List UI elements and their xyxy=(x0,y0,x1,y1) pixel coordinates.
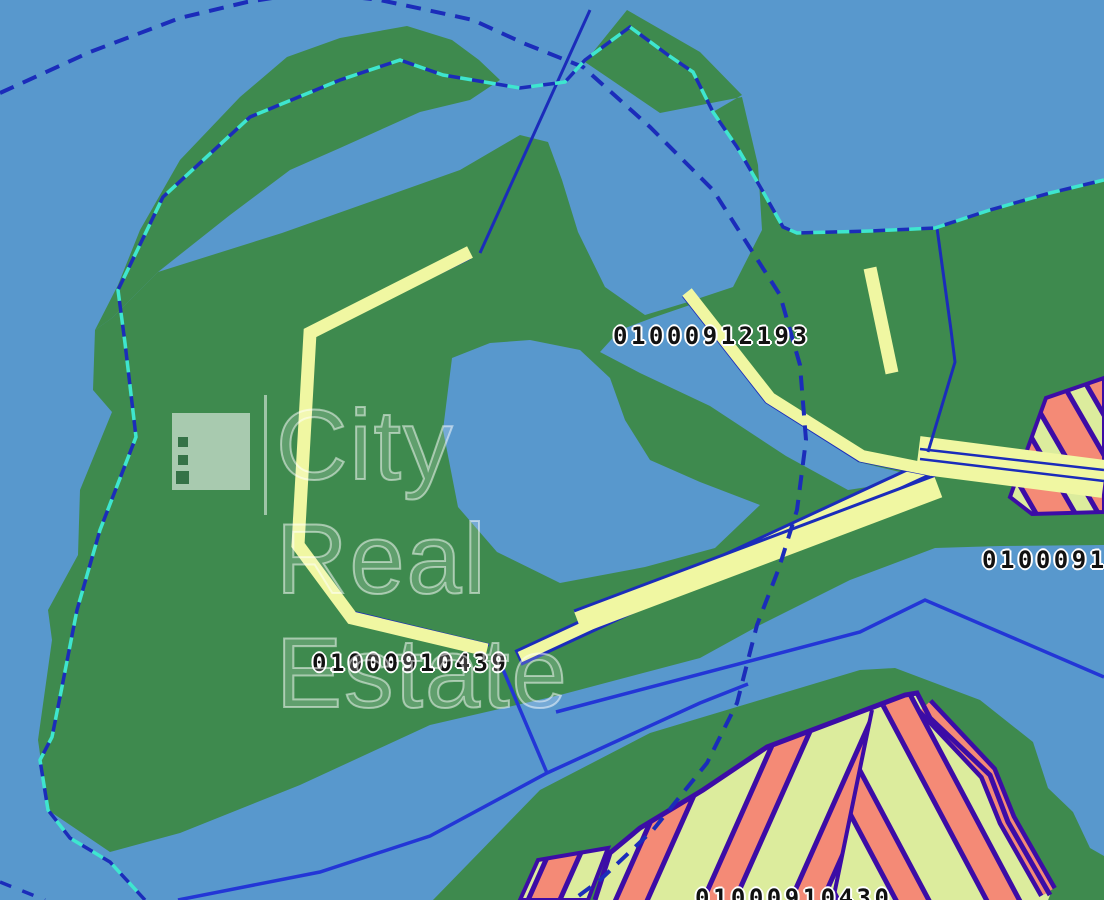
cadastral-map xyxy=(0,0,1104,900)
parcel-label: 01000910439 xyxy=(312,649,509,677)
parcel-label: 010009121 xyxy=(982,546,1104,574)
parcel-label: 01000912193 xyxy=(613,322,810,350)
parcel-label: 01000910430 xyxy=(695,884,892,900)
map-canvas[interactable]: 01000912193 01000910439 010009121 010009… xyxy=(0,0,1104,900)
